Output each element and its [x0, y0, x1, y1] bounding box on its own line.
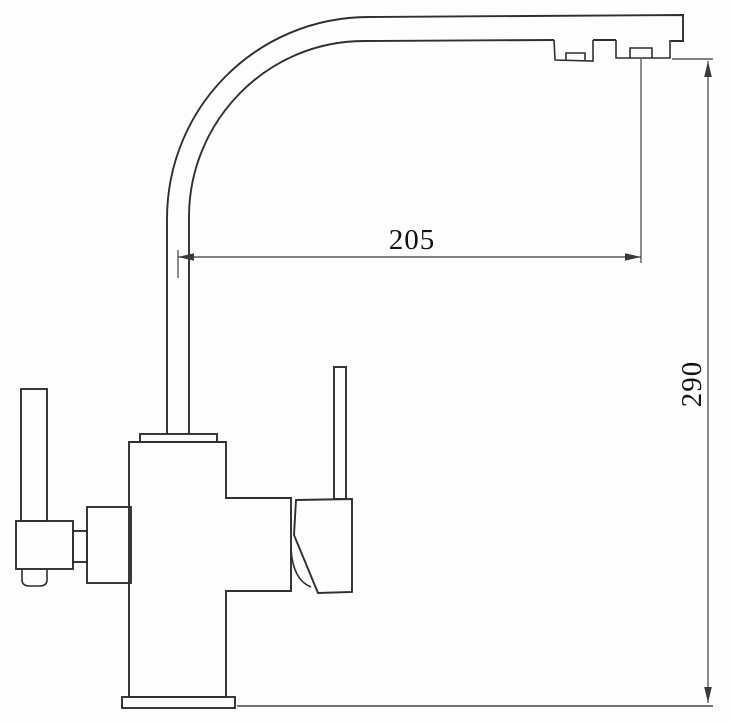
arrowhead-down-icon — [704, 687, 712, 703]
dimension-spout-reach: 205 — [178, 59, 641, 278]
aerator-outlet-tip — [630, 48, 652, 58]
left-handle-stub — [22, 569, 47, 586]
dimension-spout-height: 290 — [237, 59, 713, 706]
spout-inner-contour — [189, 40, 554, 434]
base-plate — [122, 697, 235, 708]
drawing-canvas: 205 290 — [0, 0, 732, 724]
riser-collar — [140, 434, 217, 442]
faucet-technical-drawing: 205 290 — [0, 0, 732, 724]
faucet-body — [129, 442, 291, 697]
left-valve-housing — [87, 507, 131, 583]
spray-outlet-tip — [566, 53, 585, 60]
dimension-label-spout-reach: 205 — [389, 224, 436, 256]
spray-outlet-housing — [554, 40, 593, 61]
arrowhead-right-icon — [625, 253, 641, 261]
arrowhead-left-icon — [178, 253, 194, 261]
right-handle-base — [294, 499, 352, 593]
right-handle-lever — [334, 367, 346, 499]
arrowhead-up-icon — [704, 61, 712, 77]
left-handle-neck — [73, 531, 87, 562]
left-handle-lever — [21, 389, 47, 521]
faucet-outline — [16, 15, 683, 708]
left-handle-head — [16, 521, 73, 569]
aerator-outlet-housing — [616, 40, 670, 58]
dimension-label-spout-height: 290 — [676, 361, 708, 408]
